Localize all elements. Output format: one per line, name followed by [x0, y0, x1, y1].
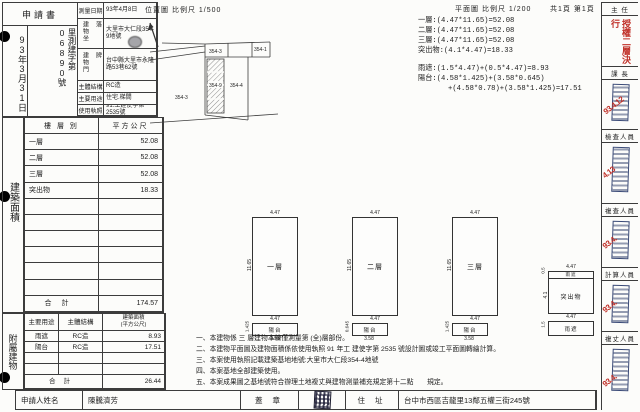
- plan-outline: 11.65 一層: [252, 217, 298, 316]
- annex-row-structure: RC造: [59, 331, 103, 342]
- canopy-outline: 雨遮 0.5: [548, 271, 594, 279]
- annex-total-label: 合計: [25, 375, 103, 389]
- parcel-label-subject: 354-9: [209, 83, 222, 89]
- empty-row: [25, 364, 59, 375]
- survey-label: 主體結構: [78, 81, 104, 93]
- parcel-label: 354-1: [254, 47, 267, 53]
- empty-row: [99, 215, 163, 231]
- canopy-label: 雨遮: [564, 325, 577, 333]
- floor-area-table: 樓 層 別 平方公尺 一層 52.08 二層 52.08 三層 52.08 突出…: [24, 117, 164, 313]
- dim-label: 0.5: [541, 262, 546, 280]
- area-total-label: 合計: [25, 296, 99, 312]
- note-line: 五、本案成果圖之基地號符合辦理土地複丈與建物測量補充規定第十二點 規定。: [196, 377, 598, 388]
- approval-box: 93.4.12: [602, 80, 638, 130]
- seal-stamp: [611, 349, 629, 392]
- notes-block: 一、本建物係 三 層建物本棟僅測量第 (全)層部份。 二、本建物平面圖及建物面積…: [196, 333, 598, 388]
- area-total-value: 174.57: [99, 296, 163, 312]
- approval-box: 93.4.: [602, 217, 638, 268]
- dim-label: 4.47: [252, 316, 298, 323]
- dim-label: 4.47: [548, 314, 594, 321]
- empty-row: [99, 247, 163, 263]
- applicant-row: 申請人姓名 陳騰濟芳 蓋 章 住 址 台中市西區吉龍里13鄰五權三街245號: [15, 390, 597, 410]
- empty-row: [59, 364, 103, 375]
- approval-box: 93.4.: [602, 345, 638, 412]
- floor-row-value: 52.08: [99, 134, 163, 150]
- plan-outline: 11.65 二層: [352, 217, 398, 316]
- approval-box: 93.4.: [602, 281, 638, 332]
- floor-row-value: 52.08: [99, 150, 163, 166]
- note-line: 三、本案使用執照記載建築基地地號:大里市大仁段354-4地號: [196, 355, 598, 366]
- note-line: 四、本案基地全部建築使用。: [196, 366, 598, 377]
- approval-column: 主 任 授權二層決行 課 長 93.4.12 檢查人員 4.13 複查人員 93…: [601, 2, 638, 410]
- plan-outline: 11.65 三層: [452, 217, 498, 316]
- survey-label: 使用執照: [78, 105, 104, 116]
- parcel-label: 354-3: [175, 95, 188, 101]
- col-header-area: 建築面積 (平方公尺): [103, 314, 165, 331]
- dim-label: 4.47: [352, 316, 398, 323]
- plan-floor-label: 突出物: [560, 292, 581, 301]
- site-plan-scale: 比例尺 1/500: [172, 7, 221, 14]
- survey-label: 測量日期: [78, 3, 104, 19]
- empty-row: [99, 280, 163, 296]
- building-survey-document: 申請書 93年3月31日 里測建字第06890號 測量日期 93年4月8日 建物…: [0, 0, 640, 412]
- stamp-mark: [128, 36, 142, 48]
- survey-label: 建物坐落: [78, 19, 104, 49]
- empty-row: [25, 199, 99, 215]
- annex-row-use: 陽台: [25, 342, 59, 353]
- dim-label: 11.65: [447, 254, 453, 276]
- receipt-date: 93年3月31日: [2, 25, 28, 117]
- annex-total-value: 26.44: [103, 375, 165, 389]
- applicant-name: 陳騰濟芳: [83, 391, 241, 409]
- col-header-floor: 樓 層 別: [25, 118, 99, 134]
- doc-type-label: 申請書: [2, 2, 78, 26]
- plan-outline: 4.1 突出物: [548, 279, 594, 314]
- calc-line: 一層:(4.47*11.65)=52.08: [418, 16, 618, 26]
- page-count: 共1頁 第1頁: [550, 4, 595, 14]
- parcel-label: 354-4: [230, 83, 243, 89]
- role-header: 檢查人員: [602, 130, 638, 143]
- floor-plan-3: 4.47 11.65 三層 4.47 陽台 1.425 3.58: [452, 210, 498, 343]
- floor-row-label: 一層: [25, 134, 99, 150]
- calc-line: 陽台:(4.58*1.425)+(3.58*0.645): [418, 74, 618, 84]
- area-calculations: 一層:(4.47*11.65)=52.08 二層:(4.47*11.65)=52…: [418, 16, 618, 94]
- dim-label: 4.47: [352, 210, 398, 217]
- parcel-label: 354-3: [209, 49, 222, 55]
- seal-column-label: 蓋 章: [241, 391, 299, 409]
- floor-row-label: 突出物: [25, 183, 99, 199]
- calc-line: +(4.58*0.78)+(3.58*1.425)=17.51: [418, 84, 618, 94]
- dim-label: 11.65: [347, 254, 353, 276]
- role-header: 計算人員: [602, 268, 638, 281]
- empty-row: [59, 353, 103, 364]
- plan-floor-label: 二層: [367, 262, 383, 272]
- floor-plan-header: 平面圖 比例尺 1/200: [455, 4, 531, 14]
- empty-row: [25, 215, 99, 231]
- col-header-use: 主要用途: [25, 314, 59, 331]
- empty-row: [103, 353, 165, 364]
- empty-row: [25, 231, 99, 247]
- approval-box: 授權二層決行: [602, 16, 638, 67]
- role-header: 課 長: [602, 67, 638, 80]
- canopy-label: 雨遮: [566, 272, 577, 278]
- annex-row-area: 17.51: [103, 342, 165, 353]
- role-header: 複查人員: [602, 204, 638, 217]
- calc-line: 雨遮:(1.5*4.47)+(0.5*4.47)=8.93: [418, 64, 618, 74]
- note-line: 二、本建物平面圖及建物面積係依使用執照 91 年工 建使字第 2535 號設計圖…: [196, 344, 598, 355]
- area-section-label: 建築面積: [2, 117, 24, 313]
- dim-label: 4.47: [452, 316, 498, 323]
- roof-projection-plan: 4.47 雨遮 0.5 4.1 突出物 4.47 雨遮 1.5: [548, 264, 594, 336]
- annex-section-label: 附屬建物: [2, 313, 24, 390]
- site-plan-title: 位置圖: [145, 7, 169, 14]
- dim-label: 4.47: [548, 264, 594, 271]
- annex-row-use: 雨遮: [25, 331, 59, 342]
- applicant-seal-stamp: [313, 391, 331, 410]
- plan-floor-label: 三層: [467, 262, 483, 272]
- note-line: 一、本建物係 三 層建物本棟僅測量第 (全)層部份。: [196, 333, 598, 344]
- survey-label: 建物門牌: [78, 49, 104, 81]
- plan-floor-label: 一層: [267, 262, 283, 272]
- receipt-number: 里測建字第06890號: [27, 25, 78, 117]
- dim-label: 11.65: [247, 254, 253, 276]
- site-plan-header: 位置圖 比例尺 1/500: [145, 5, 221, 15]
- survey-label: 主要用途: [78, 93, 104, 105]
- approval-box: 4.13: [602, 143, 638, 204]
- col-header-structure: 主體結構: [59, 314, 103, 331]
- empty-row: [25, 247, 99, 263]
- empty-row: [25, 280, 99, 296]
- calc-line: 突出物:(4.1*4.47)=18.33: [418, 46, 618, 56]
- address-label: 住 址: [346, 391, 399, 409]
- floor-plan-2: 4.47 11.65 二層 4.47 陽台 0.645 3.58: [352, 210, 398, 343]
- annex-row-area: 8.93: [103, 331, 165, 342]
- role-header: 複丈人員: [602, 332, 638, 345]
- floor-plan-title: 平面圖: [455, 6, 479, 13]
- site-plan-map: 354-3 354-1 354-9 354-4 354-3: [150, 35, 278, 130]
- empty-row: [25, 353, 59, 364]
- floor-row-value: 18.33: [99, 183, 163, 199]
- floor-row-value: 52.08: [99, 166, 163, 182]
- floor-row-label: 三層: [25, 166, 99, 182]
- calc-line: 二層:(4.47*11.65)=52.08: [418, 26, 618, 36]
- empty-row: [99, 263, 163, 279]
- annex-row-structure: RC造: [59, 342, 103, 353]
- applicant-seal-cell: [299, 391, 346, 409]
- dim-label: 4.47: [452, 210, 498, 217]
- empty-row: [103, 364, 165, 375]
- empty-row: [99, 199, 163, 215]
- floor-row-label: 二層: [25, 150, 99, 166]
- applicant-address: 台中市西區吉龍里13鄰五權三街245號: [399, 391, 596, 409]
- calc-line: 三層:(4.47*11.65)=52.08: [418, 36, 618, 46]
- dim-label: 4.1: [543, 284, 549, 306]
- empty-row: [25, 263, 99, 279]
- annex-table: 主要用途 主體結構 建築面積 (平方公尺) 雨遮 RC造 8.93 陽台 RC造…: [24, 313, 166, 390]
- dim-label: 1.5: [541, 316, 546, 334]
- floor-plan-1: 4.47 11.65 一層 4.47 陽台 1.425 4.58: [252, 210, 298, 343]
- floor-plan-scale: 比例尺 1/200: [482, 6, 531, 13]
- role-header: 主 任: [602, 3, 638, 16]
- delegation-note: 授權二層決行: [609, 19, 631, 65]
- empty-row: [99, 231, 163, 247]
- applicant-name-label: 申請人姓名: [16, 391, 83, 409]
- dim-label: 4.47: [252, 210, 298, 217]
